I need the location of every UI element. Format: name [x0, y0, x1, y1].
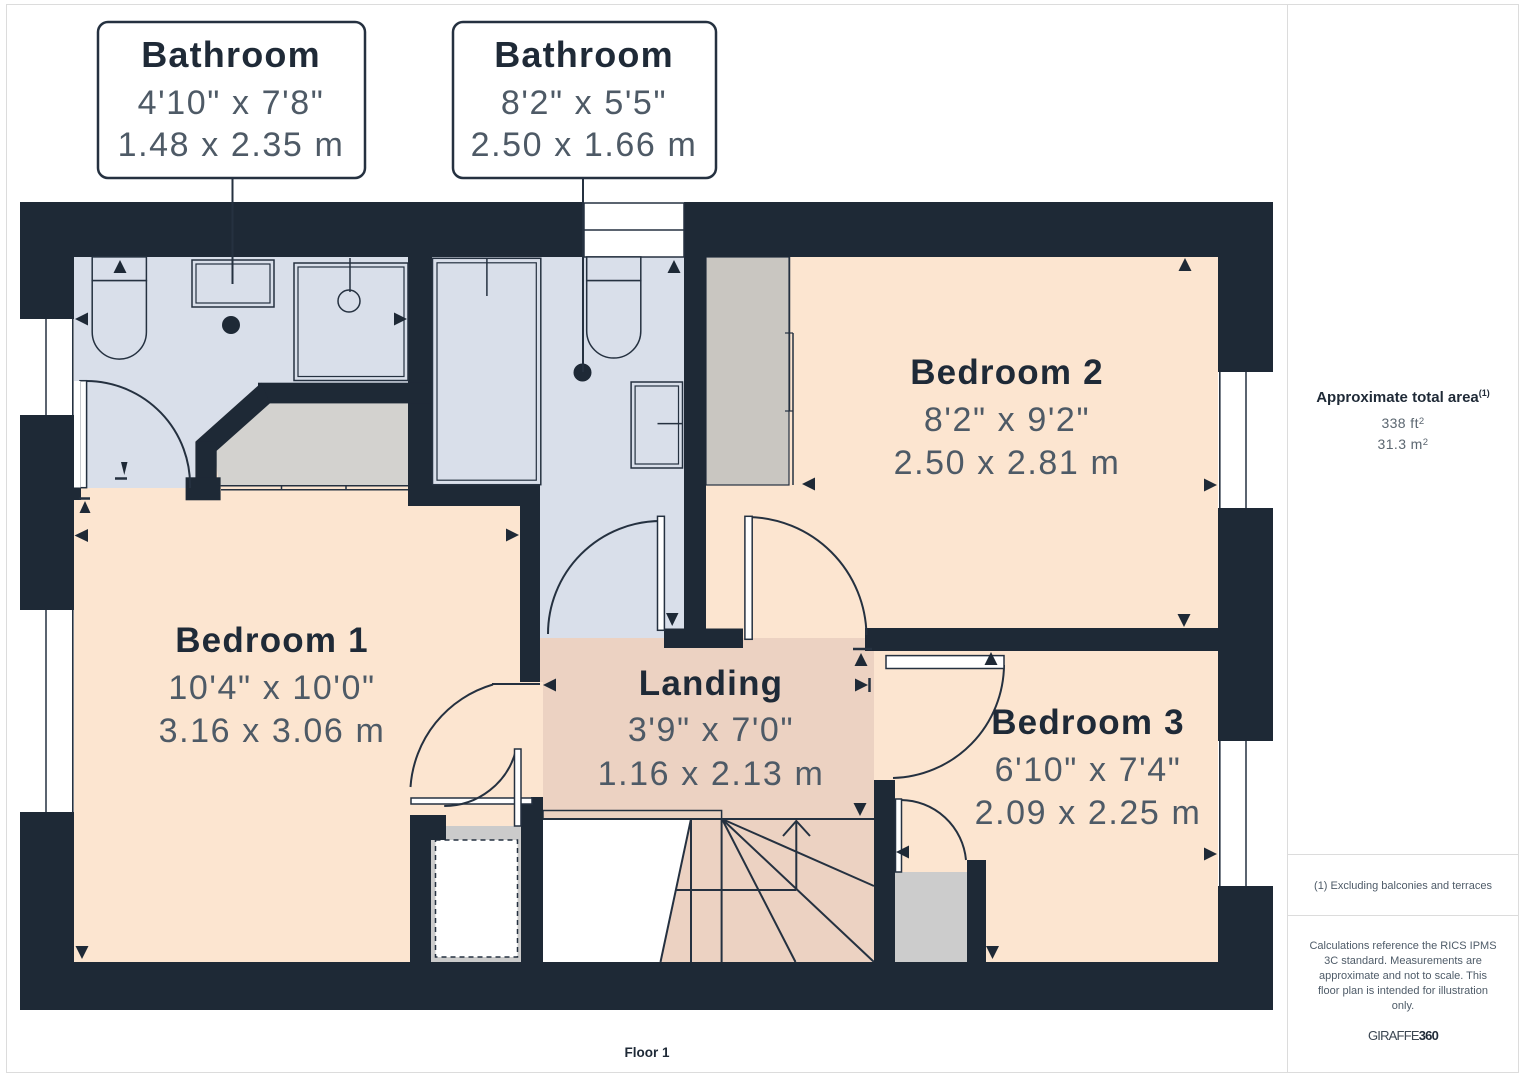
svg-text:1.16 x 2.13 m: 1.16 x 2.13 m: [598, 755, 825, 793]
svg-text:4'10" x 7'8": 4'10" x 7'8": [138, 84, 325, 122]
svg-text:31.3 m2: 31.3 m2: [1378, 436, 1429, 452]
svg-text:Floor 1: Floor 1: [624, 1045, 669, 1060]
svg-text:Calculations reference the RIC: Calculations reference the RICS IPMS: [1309, 940, 1496, 952]
svg-text:8'2" x 9'2": 8'2" x 9'2": [924, 401, 1090, 439]
svg-text:Bedroom 1: Bedroom 1: [175, 621, 369, 660]
svg-text:3'9" x 7'0": 3'9" x 7'0": [628, 711, 794, 749]
svg-text:2.50 x 2.81 m: 2.50 x 2.81 m: [894, 444, 1121, 482]
svg-text:Bathroom: Bathroom: [141, 34, 321, 75]
svg-text:floor plan is intended for ill: floor plan is intended for illustration: [1318, 985, 1488, 997]
svg-text:only.: only.: [1392, 1000, 1414, 1012]
svg-text:2.09 x 2.25 m: 2.09 x 2.25 m: [975, 794, 1202, 832]
svg-text:6'10" x 7'4": 6'10" x 7'4": [995, 751, 1182, 789]
svg-text:Approximate total area(1): Approximate total area(1): [1316, 388, 1490, 406]
svg-text:3.16 x 3.06 m: 3.16 x 3.06 m: [159, 712, 386, 750]
svg-text:Landing: Landing: [639, 664, 784, 703]
svg-text:GIRAFFE360: GIRAFFE360: [1368, 1028, 1439, 1043]
svg-text:1.48 x 2.35 m: 1.48 x 2.35 m: [118, 126, 345, 164]
svg-text:Bedroom 2: Bedroom 2: [910, 353, 1104, 392]
svg-text:2.50 x 1.66 m: 2.50 x 1.66 m: [471, 126, 698, 164]
svg-text:Bedroom 3: Bedroom 3: [991, 703, 1185, 742]
svg-text:3C standard. Measurements are: 3C standard. Measurements are: [1324, 955, 1482, 967]
svg-text:10'4" x 10'0": 10'4" x 10'0": [168, 669, 375, 707]
svg-text:338 ft2: 338 ft2: [1381, 415, 1424, 431]
svg-text:(1) Excluding balconies and te: (1) Excluding balconies and terraces: [1314, 880, 1492, 892]
svg-text:8'2" x 5'5": 8'2" x 5'5": [501, 84, 667, 122]
svg-text:Bathroom: Bathroom: [494, 34, 674, 75]
svg-text:approximate and not to scale.: approximate and not to scale. This: [1319, 970, 1487, 982]
